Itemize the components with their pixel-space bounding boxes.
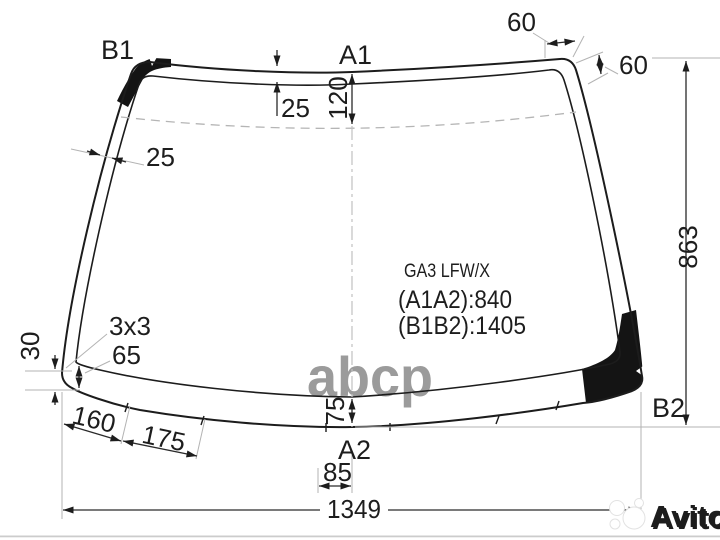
dim-bottom-seg2: 175 [140, 419, 189, 457]
dim-top-corner-width: 60 [507, 7, 536, 37]
photo-edge-line [0, 536, 720, 538]
dim-bottom-seg1: 160 [70, 400, 119, 439]
dim-left-offset: 30 [15, 332, 45, 361]
part-code: GA3 LFW/X [404, 261, 490, 282]
dim-a1a2: (A1A2):840 [398, 286, 512, 314]
avito-logo-circles [610, 499, 646, 530]
dim-right-height: 863 [673, 225, 703, 268]
label-a1: A1 [339, 40, 372, 70]
dim-bottom-band: 75 [320, 397, 350, 426]
windshield-dimension-diagram: abcp [0, 0, 720, 540]
dim-corner-band: 65 [112, 340, 141, 370]
dim-bottom-width: 1349 [327, 494, 381, 524]
avito-text: Avito [650, 499, 720, 534]
dim-top-band-width: 25 [281, 93, 310, 123]
avito-watermark: Avito Avito [610, 499, 720, 537]
label-b2: B2 [652, 393, 685, 423]
dim-left-band-width: 25 [146, 142, 175, 172]
extension-lines [25, 33, 720, 519]
dim-b1b2: (B1B2):1405 [398, 312, 526, 340]
dim-top-to-fold: 120 [323, 76, 353, 119]
diagram-canvas: abcp [0, 0, 720, 540]
dim-center-offset: 85 [323, 457, 352, 487]
dim-top-corner-drop: 60 [619, 50, 648, 80]
label-b1: B1 [101, 35, 134, 65]
band-notch-left [115, 78, 123, 89]
dim-corner-mark: 3x3 [109, 311, 151, 341]
